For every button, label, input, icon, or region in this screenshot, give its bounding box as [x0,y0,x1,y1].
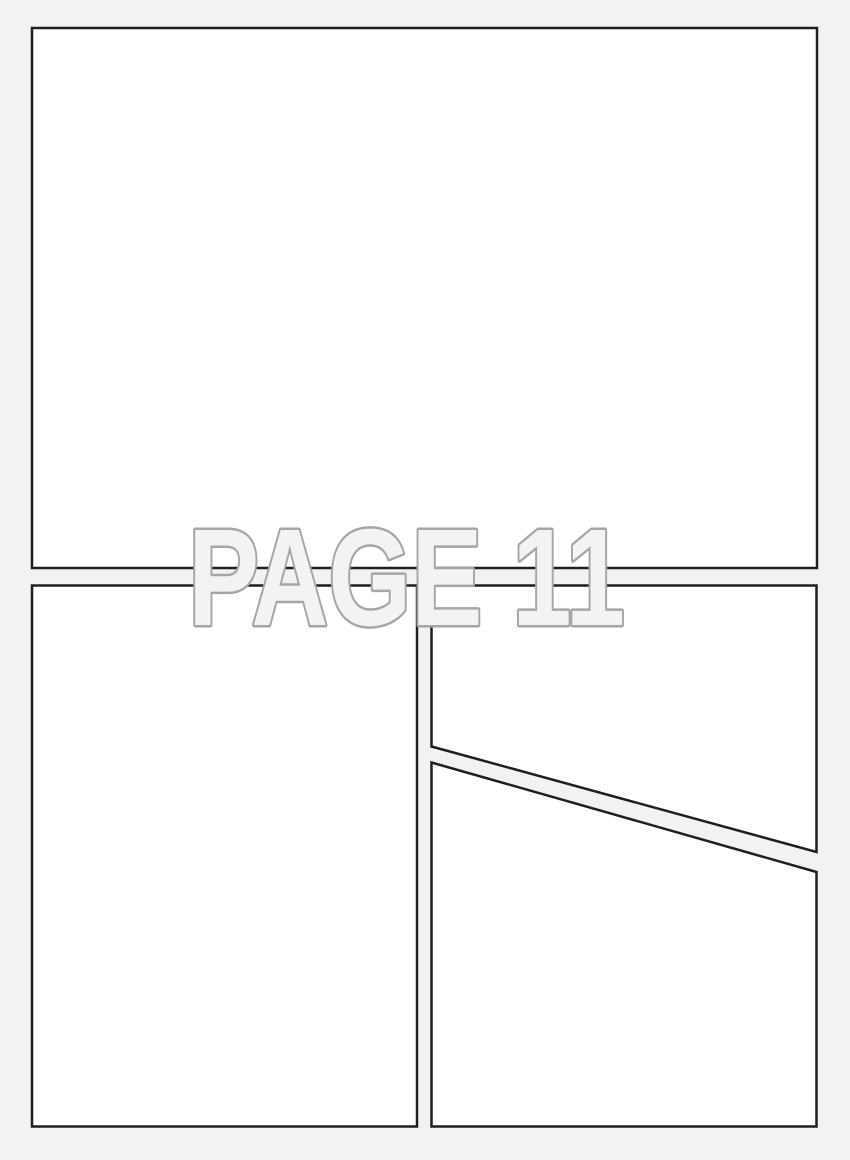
comic-page-template: PAGE 11 [0,0,850,1160]
comic-page-canvas: PAGE 11 [0,0,850,1160]
panel-top[interactable] [32,28,817,568]
panel-bottom-left[interactable] [32,586,417,1127]
page-number-label: PAGE 11 [188,501,625,655]
